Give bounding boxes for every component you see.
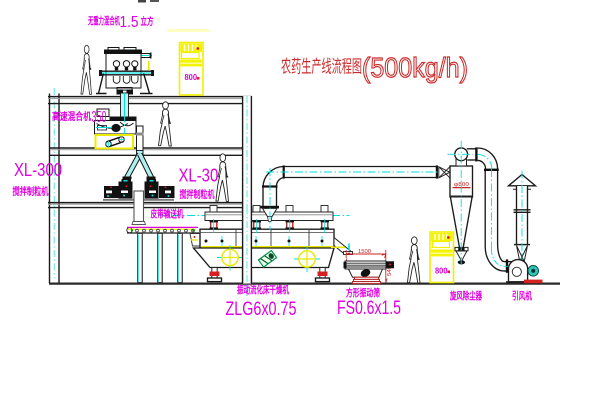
svg-text:立方: 立方 (141, 15, 154, 28)
svg-text:1500: 1500 (358, 249, 371, 255)
svg-text:皮带输送机: 皮带输送机 (150, 208, 184, 221)
svg-text:旋风除尘器: 旋风除尘器 (449, 290, 482, 303)
svg-text:XL-300: XL-300 (14, 159, 62, 180)
svg-text:高速混合机: 高速混合机 (52, 110, 91, 123)
svg-text:800: 800 (435, 266, 448, 276)
svg-text:无重力混合机: 无重力混合机 (87, 15, 120, 28)
svg-text:ZLG6x0.75: ZLG6x0.75 (226, 298, 297, 320)
svg-text:1.5: 1.5 (120, 14, 139, 31)
svg-text:农药生产线流程图: 农药生产线流程图 (281, 57, 362, 77)
svg-text:350: 350 (92, 109, 107, 126)
svg-text:振动流化床干燥机: 振动流化床干燥机 (237, 284, 289, 297)
svg-text:引风机: 引风机 (512, 290, 532, 303)
svg-text:搅拌制粒机: 搅拌制粒机 (180, 188, 215, 201)
svg-text:(500kg/h): (500kg/h) (362, 52, 468, 83)
svg-text:800: 800 (185, 72, 198, 82)
svg-text:FS0.6x1.5: FS0.6x1.5 (337, 297, 401, 319)
svg-text:搅拌制粒机: 搅拌制粒机 (13, 185, 49, 198)
